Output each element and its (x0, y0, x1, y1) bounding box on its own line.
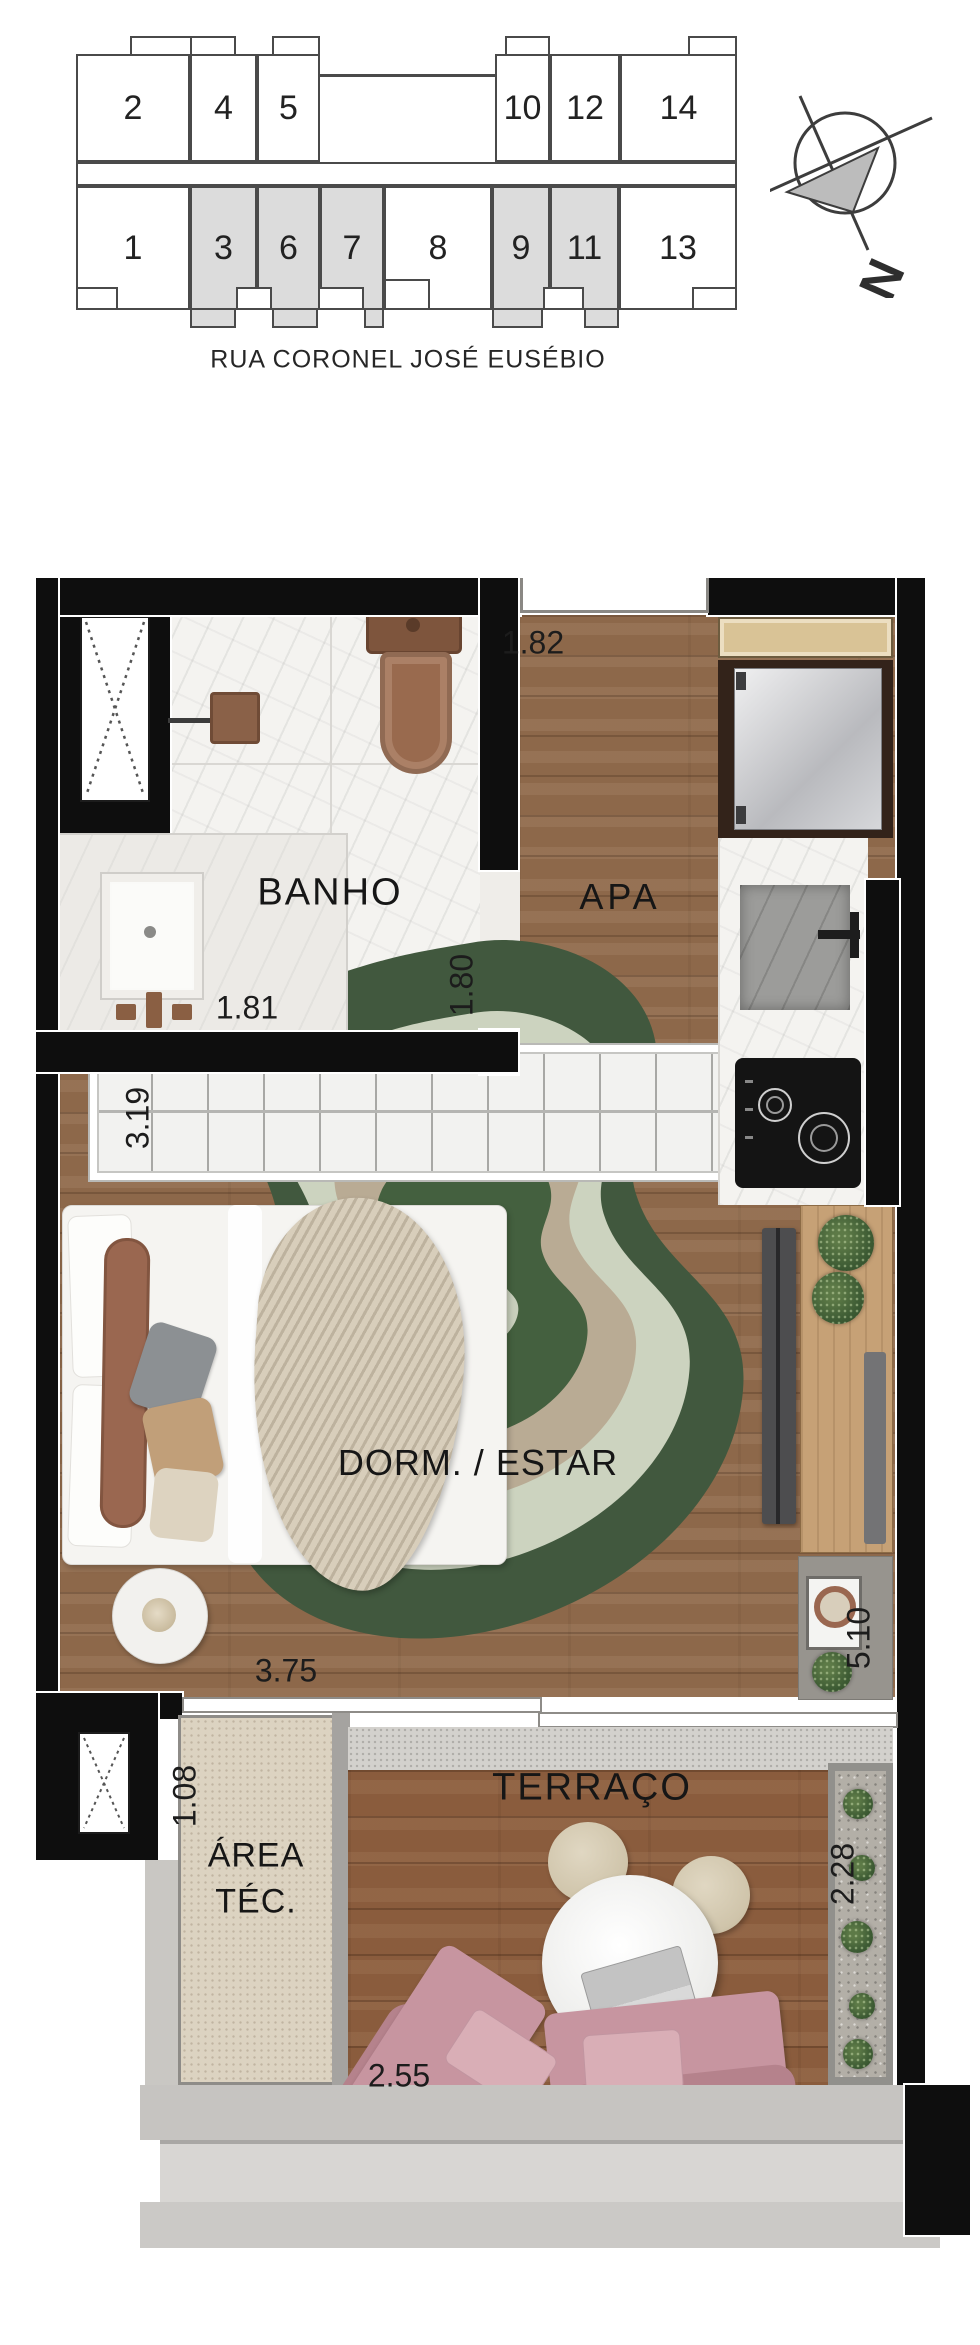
building-tab (364, 308, 384, 328)
dimension-tech: 1.08 (167, 1765, 204, 1827)
duct-shaft (80, 616, 150, 802)
planter-plant (843, 1789, 873, 1819)
building-tab (190, 308, 236, 328)
building-notch (384, 279, 430, 310)
cooktop-knobs (745, 1108, 753, 1111)
entry-door-jamb (706, 578, 709, 613)
north-compass-icon: N (770, 58, 950, 298)
terrace-step (140, 2085, 905, 2140)
wall-bottom-right (905, 2085, 970, 2235)
site-unit-highlighted: 9 (492, 186, 550, 310)
building-notch (543, 287, 584, 310)
unit-number: 2 (124, 89, 143, 128)
room-label-living: DORM. / ESTAR (338, 1442, 618, 1484)
shelf-strip (864, 1352, 886, 1544)
building-notch (76, 287, 118, 310)
basin-faucet (146, 992, 162, 1028)
floor-plan: 3.19 (0, 560, 980, 2345)
tv-panel (762, 1228, 796, 1524)
building-tab (272, 308, 318, 328)
dimension-bath-width: 1.81 (216, 990, 278, 1027)
toilet-flush-button (406, 618, 420, 632)
basin-faucet-handle (116, 1004, 136, 1020)
cooktop-burner-large (798, 1112, 850, 1164)
dimension-room-depth: 5.10 (841, 1607, 878, 1669)
site-key-plan: 2 4 5 10 12 14 1 3 6 7 8 9 11 13 RUA COR… (0, 0, 980, 400)
basin-drain (144, 926, 156, 938)
wall-right-jut (866, 880, 899, 1205)
unit-number: 13 (659, 229, 697, 268)
unit-number: 3 (214, 229, 233, 268)
site-unit: 2 (76, 54, 190, 162)
terrace-planter (828, 1763, 893, 2085)
building-tab (492, 308, 543, 328)
site-unit: 5 (257, 54, 320, 162)
entry-door-threshold (522, 610, 708, 613)
site-unit: 10 (495, 54, 550, 162)
wall-top-right (708, 578, 925, 615)
terrace-top-band (348, 1727, 893, 1770)
fridge-hinge (736, 672, 746, 690)
dimension-entry: 1.82 (502, 625, 564, 662)
kitchen-sink (740, 885, 850, 1010)
building-corridor (76, 162, 737, 186)
unit-number: 6 (279, 229, 298, 268)
fridge-hinge (736, 806, 746, 824)
planter-plant (849, 1993, 875, 2019)
shower-head (210, 692, 260, 744)
dimension-closet: 3.19 (120, 1087, 157, 1149)
street-name: RUA CORONEL JOSÉ EUSÉBIO (210, 346, 605, 375)
building-notch (318, 287, 364, 310)
unit-number: 11 (567, 229, 602, 268)
building-tab (584, 308, 619, 328)
room-label-terrace: TERRAÇO (492, 1767, 692, 1810)
unit-number: 10 (504, 89, 542, 128)
room-label-bath: BANHO (257, 872, 402, 915)
room-label-tech-1: ÁREA (208, 1837, 305, 1876)
compass-n-label: N (847, 250, 915, 298)
unit-number: 4 (214, 89, 233, 128)
dimension-terrace: 2.55 (368, 2058, 430, 2095)
room-label-tech-2: TÉC. (215, 1883, 296, 1922)
planter-plant (843, 2039, 873, 2069)
entry-console (718, 617, 893, 658)
potted-plant (818, 1215, 874, 1271)
wall-left (36, 578, 58, 1860)
unit-number: 12 (566, 89, 604, 128)
terrace-step (140, 2202, 940, 2248)
bed-cushion-cream (149, 1467, 220, 1543)
site-unit: 14 (620, 54, 737, 162)
cooktop-knobs (745, 1136, 753, 1139)
terrace-step (160, 2140, 922, 2202)
wall-bath-right-upper (480, 578, 518, 870)
cooktop-knobs (745, 1080, 753, 1083)
wall-right (897, 578, 925, 2092)
bedside-decor (142, 1598, 176, 1632)
left-slab-strip (145, 1860, 178, 2085)
unit-number: 5 (279, 89, 298, 128)
kitchen-faucet (850, 912, 859, 958)
shaft-x-icon (80, 1734, 128, 1832)
unit-number: 7 (343, 229, 362, 268)
planter-gravel (835, 1771, 886, 2077)
unit-number: 14 (660, 89, 698, 128)
potted-plant (812, 1272, 864, 1324)
building-notch (236, 287, 272, 310)
shower-arm (168, 718, 214, 723)
unit-number: 8 (429, 229, 448, 268)
terrace-sliding-door (182, 1697, 542, 1713)
basin-faucet-handle (172, 1004, 192, 1020)
terrace-sliding-door (538, 1712, 898, 1728)
dimension-planter: 2.28 (825, 1843, 862, 1905)
room-label-entry: APA (579, 876, 660, 918)
duct-shaft (78, 1732, 130, 1834)
entry-door-jamb (520, 578, 523, 613)
toilet-bowl (380, 652, 452, 774)
fridge (734, 668, 882, 830)
wall-top-left (36, 578, 520, 615)
dimension-room-width: 3.75 (255, 1653, 317, 1690)
planter-plant (841, 1921, 873, 1953)
cooktop-burner-small (758, 1088, 792, 1122)
unit-number: 9 (512, 229, 531, 268)
shaft-x-icon (82, 618, 148, 800)
unit-number: 1 (124, 229, 143, 268)
site-unit: 4 (190, 54, 257, 162)
wall-bath-bottom (36, 1032, 518, 1072)
site-unit: 12 (550, 54, 620, 162)
dimension-bath-depth: 1.80 (444, 954, 481, 1016)
building-notch (692, 287, 737, 310)
building-connector-line (320, 74, 496, 77)
